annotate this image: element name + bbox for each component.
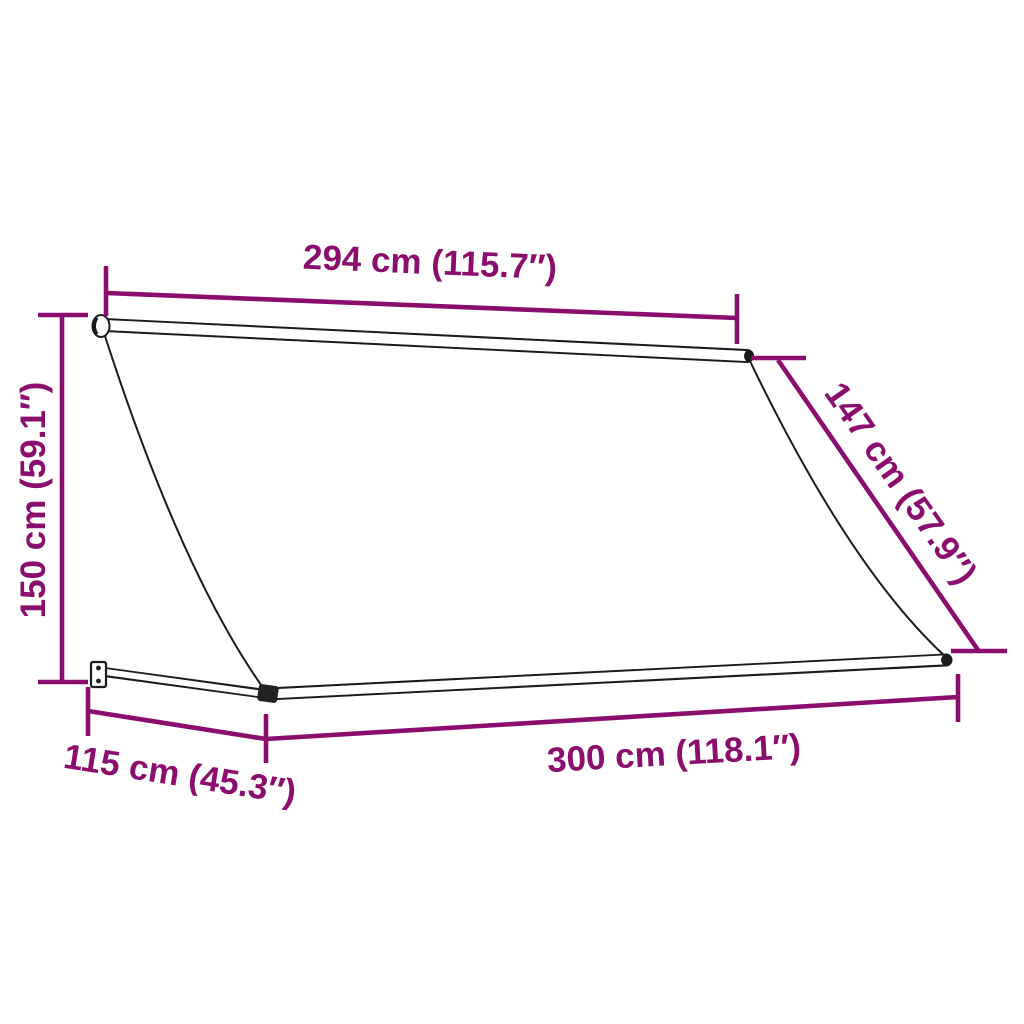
front-bar-fill: [269, 660, 942, 694]
dimension-diagram: 294 cm (115.7″) 150 cm (59.1″) 147 cm (5…: [0, 0, 1024, 1024]
back-width-label: 294 cm (115.7″): [302, 238, 558, 288]
front-bar-right-cap: [941, 655, 951, 666]
wall-bracket-bolt-top: [96, 666, 101, 671]
left-arm-fill: [106, 672, 264, 694]
dim-back-width-line: [106, 293, 737, 318]
awning-outline: [91, 315, 951, 703]
awning-dimension-drawing: 294 cm (115.7″) 150 cm (59.1″) 147 cm (5…: [0, 0, 1024, 1024]
height-label: 150 cm (59.1″): [14, 382, 53, 619]
dim-depth-line: [88, 711, 266, 739]
dim-front-width-line: [266, 697, 958, 739]
front-left-joint: [257, 684, 279, 704]
fabric-left-edge: [104, 333, 266, 692]
wall-bracket-bolt-bottom: [96, 679, 101, 684]
dim-side-slant-line: [778, 360, 978, 650]
projection-depth-label: 115 cm (45.3″): [61, 737, 299, 812]
roller-bar-fill: [105, 325, 745, 356]
side-slant-label: 147 cm (57.9″): [817, 375, 985, 591]
front-width-label: 300 cm (118.1″): [546, 727, 802, 780]
